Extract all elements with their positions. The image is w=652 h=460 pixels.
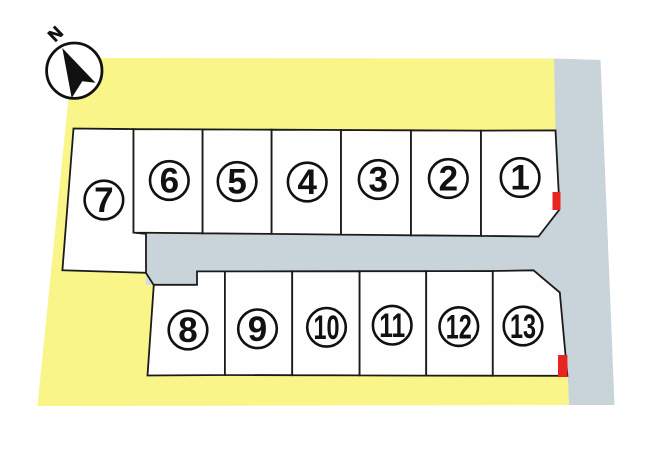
svg-text:13: 13 <box>510 308 536 346</box>
svg-text:4: 4 <box>297 163 317 202</box>
svg-text:8: 8 <box>178 311 197 350</box>
svg-text:12: 12 <box>446 308 472 346</box>
svg-text:9: 9 <box>248 310 267 349</box>
svg-text:5: 5 <box>227 163 246 202</box>
svg-text:6: 6 <box>160 162 179 201</box>
svg-text:10: 10 <box>314 309 340 347</box>
svg-text:11: 11 <box>379 307 405 345</box>
svg-text:7: 7 <box>94 181 113 220</box>
svg-text:1: 1 <box>510 159 529 198</box>
svg-text:2: 2 <box>439 160 458 199</box>
svg-text:3: 3 <box>368 161 387 200</box>
